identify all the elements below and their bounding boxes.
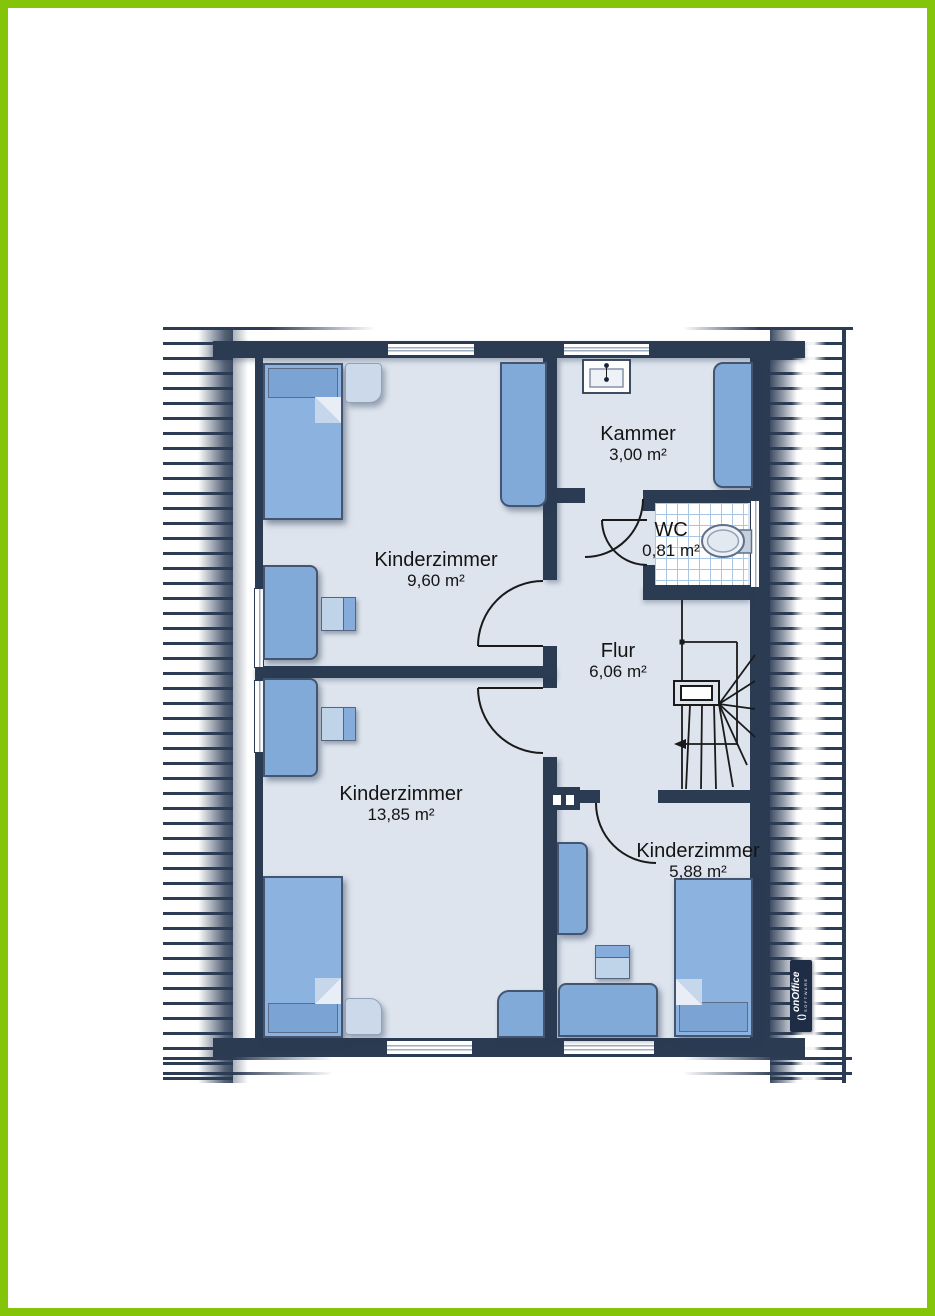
room-name: Kinderzimmer bbox=[636, 840, 759, 862]
room-area: 0,81 m² bbox=[642, 541, 700, 561]
bed-icon bbox=[674, 878, 753, 1037]
wardrobe-icon bbox=[557, 842, 588, 935]
room-label-wc: WC 0,81 m² bbox=[642, 519, 700, 561]
room-area: 13,85 m² bbox=[339, 805, 462, 825]
pillow-icon bbox=[268, 368, 338, 398]
room-area: 9,60 m² bbox=[374, 571, 497, 591]
wall-outer-bottom bbox=[213, 1038, 805, 1057]
desk-icon bbox=[263, 678, 318, 777]
wall-wc-top bbox=[643, 490, 750, 503]
blanket-fold-icon bbox=[315, 397, 341, 423]
window-icon bbox=[563, 1040, 655, 1055]
wall-between-kinderzimmer bbox=[255, 666, 557, 678]
desk-icon bbox=[263, 565, 318, 660]
wardrobe-icon bbox=[497, 990, 545, 1038]
room-area: 6,06 m² bbox=[589, 662, 647, 682]
onoffice-sub-text: SOFTWARE bbox=[802, 972, 810, 1012]
window-icon bbox=[750, 500, 760, 588]
desk-icon bbox=[558, 983, 658, 1037]
wall-outer-top bbox=[213, 341, 805, 358]
bed-icon bbox=[263, 363, 343, 520]
onoffice-brand-text: onOffice bbox=[793, 972, 801, 1012]
chair-icon bbox=[595, 945, 630, 979]
wall-wc-bottom bbox=[643, 585, 750, 600]
bed-icon bbox=[263, 876, 343, 1038]
roof-hatching-top-right bbox=[683, 327, 853, 341]
plan-right-edge-line bbox=[842, 327, 846, 1083]
blanket-fold-icon bbox=[676, 979, 702, 1005]
chimney-flue bbox=[566, 795, 574, 805]
room-name: Flur bbox=[589, 640, 647, 662]
room-name: Kinderzimmer bbox=[339, 783, 462, 805]
chair-icon bbox=[321, 597, 356, 631]
onoffice-logo-inner: ( ) onOffice SOFTWARE bbox=[790, 960, 812, 1032]
roof-hatching-bottom-left bbox=[163, 1057, 333, 1085]
pillow-icon bbox=[268, 1003, 338, 1033]
room-label-kammer: Kammer 3,00 m² bbox=[600, 423, 676, 465]
window-icon bbox=[563, 343, 650, 356]
onoffice-bracket-icon: ( ) bbox=[796, 1015, 806, 1021]
wardrobe-icon bbox=[500, 362, 547, 507]
roof-hatching-top-left bbox=[163, 327, 375, 341]
room-label-kinderzimmer-3: Kinderzimmer 5,88 m² bbox=[636, 840, 759, 882]
wall-wc-left-upper bbox=[643, 503, 655, 511]
roof-hatching-bottom-right bbox=[683, 1057, 852, 1085]
wardrobe-icon bbox=[713, 362, 753, 488]
window-icon bbox=[387, 343, 475, 356]
room-area: 5,88 m² bbox=[636, 862, 759, 882]
chimney-icon bbox=[548, 787, 580, 810]
floor-plan-page: Kinderzimmer 9,60 m² Kammer 3,00 m² WC 0… bbox=[0, 0, 935, 1316]
roof-hatching-left bbox=[163, 327, 233, 1083]
chair-icon bbox=[321, 707, 356, 741]
roof-shadow-left bbox=[233, 327, 253, 1083]
pillow-icon bbox=[679, 1002, 748, 1032]
floor-plan: Kinderzimmer 9,60 m² Kammer 3,00 m² WC 0… bbox=[163, 325, 853, 1085]
wall-kammer-stub bbox=[557, 488, 585, 503]
room-name: Kinderzimmer bbox=[374, 549, 497, 571]
onoffice-logo: ( ) onOffice SOFTWARE bbox=[790, 960, 812, 1032]
window-icon bbox=[386, 1040, 473, 1055]
blanket-fold-icon bbox=[315, 978, 341, 1004]
chimney-flue bbox=[553, 795, 561, 805]
wall-flur-south-right bbox=[658, 790, 750, 803]
room-label-flur: Flur 6,06 m² bbox=[589, 640, 647, 682]
room-area: 3,00 m² bbox=[600, 445, 676, 465]
wall-wc-left-lower bbox=[643, 565, 655, 585]
room-label-kinderzimmer-2: Kinderzimmer 13,85 m² bbox=[339, 783, 462, 825]
room-label-kinderzimmer-1: Kinderzimmer 9,60 m² bbox=[374, 549, 497, 591]
wall-outer-right bbox=[750, 358, 770, 1038]
nightstand-icon bbox=[345, 998, 382, 1035]
nightstand-icon bbox=[345, 363, 382, 403]
room-name: Kammer bbox=[600, 423, 676, 445]
room-name: WC bbox=[642, 519, 700, 541]
